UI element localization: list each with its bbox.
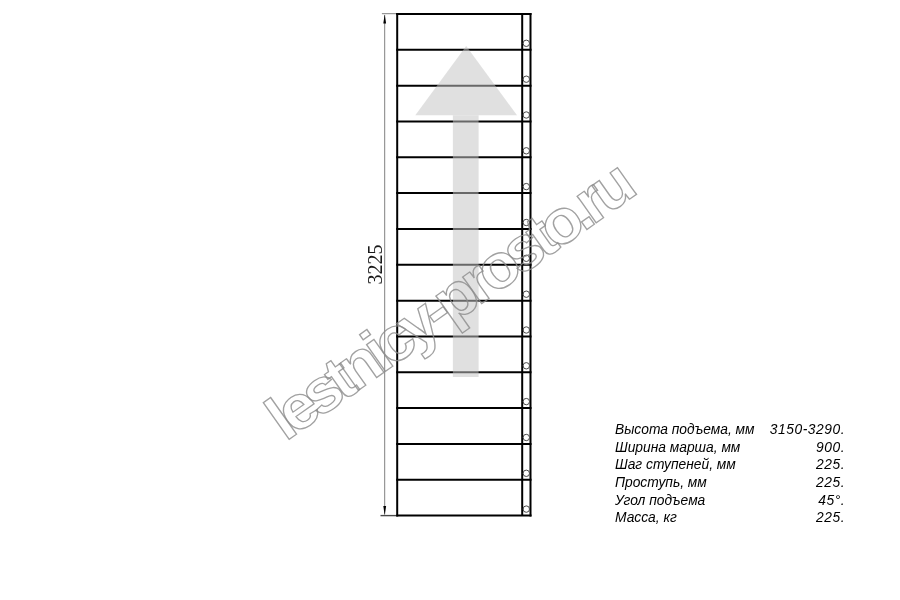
svg-text:lestnicy-prosto.ru: lestnicy-prosto.ru <box>253 149 644 453</box>
